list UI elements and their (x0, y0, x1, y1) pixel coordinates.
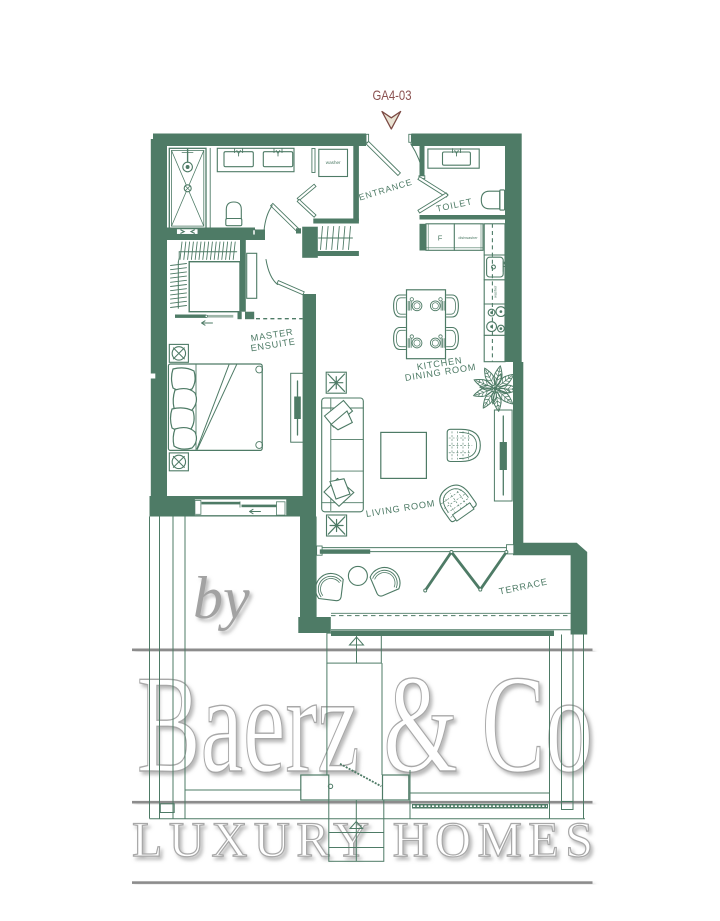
svg-text:washer: washer (326, 160, 341, 165)
svg-text:dishwasher: dishwasher (458, 236, 478, 240)
svg-text:by: by (193, 565, 250, 631)
svg-text:washer: washer (494, 285, 498, 298)
svg-text:F: F (438, 234, 443, 243)
svg-text:GA4-03: GA4-03 (373, 87, 412, 103)
svg-text:Baerz & Co: Baerz & Co (137, 647, 593, 802)
